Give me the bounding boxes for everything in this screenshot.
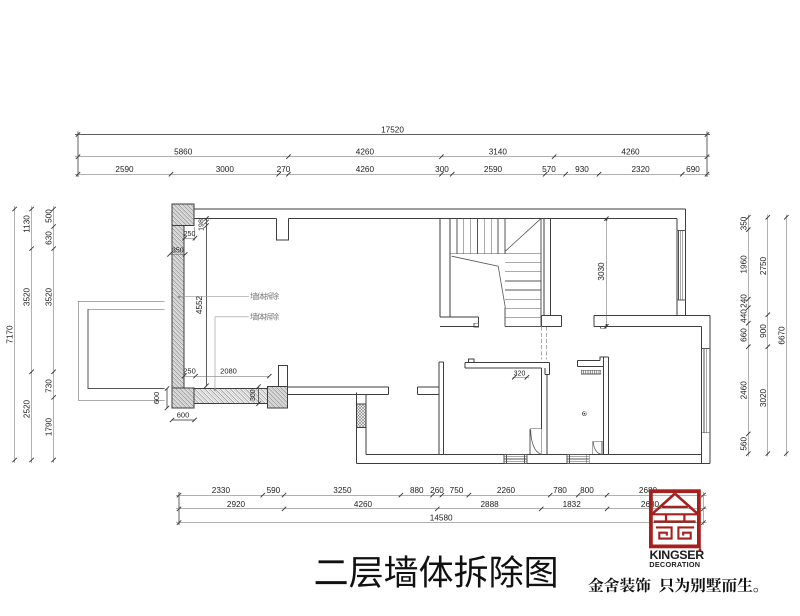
svg-text:250: 250 bbox=[184, 231, 196, 238]
svg-text:1130: 1130 bbox=[23, 215, 32, 233]
svg-text:660: 660 bbox=[739, 328, 748, 342]
svg-text:2750: 2750 bbox=[759, 256, 768, 275]
svg-text:4260: 4260 bbox=[356, 165, 375, 174]
svg-text:3030: 3030 bbox=[597, 262, 606, 281]
svg-text:350: 350 bbox=[172, 248, 184, 255]
svg-text:2260: 2260 bbox=[497, 486, 516, 495]
svg-text:3520: 3520 bbox=[23, 287, 32, 306]
svg-text:750: 750 bbox=[450, 486, 464, 495]
svg-text:350: 350 bbox=[739, 216, 748, 230]
svg-text:7170: 7170 bbox=[6, 325, 15, 344]
svg-text:690: 690 bbox=[686, 165, 700, 174]
svg-text:2590: 2590 bbox=[484, 165, 503, 174]
svg-text:2920: 2920 bbox=[227, 500, 246, 509]
svg-text:730: 730 bbox=[45, 379, 54, 393]
svg-text:DECORATION: DECORATION bbox=[649, 560, 700, 569]
svg-text:500: 500 bbox=[45, 209, 54, 223]
svg-text:240: 240 bbox=[739, 294, 748, 308]
svg-text:2520: 2520 bbox=[23, 399, 32, 418]
svg-text:3000: 3000 bbox=[216, 165, 235, 174]
svg-text:3250: 3250 bbox=[333, 486, 352, 495]
svg-text:3020: 3020 bbox=[759, 388, 768, 407]
svg-text:590: 590 bbox=[267, 486, 281, 495]
svg-text:3520: 3520 bbox=[45, 287, 54, 306]
svg-text:880: 880 bbox=[410, 486, 424, 495]
svg-text:5860: 5860 bbox=[174, 148, 193, 157]
svg-text:780: 780 bbox=[553, 486, 567, 495]
svg-text:2320: 2320 bbox=[631, 165, 650, 174]
svg-text:560: 560 bbox=[739, 437, 748, 451]
svg-text:2460: 2460 bbox=[739, 381, 748, 400]
svg-text:6670: 6670 bbox=[777, 326, 786, 345]
svg-text:570: 570 bbox=[542, 165, 556, 174]
svg-text:4552: 4552 bbox=[195, 295, 204, 314]
svg-text:250: 250 bbox=[183, 367, 196, 376]
svg-text:14580: 14580 bbox=[430, 514, 453, 523]
svg-text:4260: 4260 bbox=[621, 148, 640, 157]
svg-text:800: 800 bbox=[580, 486, 594, 495]
svg-text:300: 300 bbox=[435, 165, 449, 174]
svg-text:198: 198 bbox=[199, 219, 206, 231]
svg-text:3140: 3140 bbox=[489, 148, 508, 157]
svg-text:320: 320 bbox=[514, 371, 526, 378]
svg-text:4260: 4260 bbox=[356, 148, 375, 157]
svg-text:2590: 2590 bbox=[115, 165, 134, 174]
svg-text:1832: 1832 bbox=[563, 500, 582, 509]
svg-text:300: 300 bbox=[250, 389, 257, 401]
svg-text:4260: 4260 bbox=[354, 500, 373, 509]
svg-text:2330: 2330 bbox=[212, 486, 231, 495]
svg-text:1960: 1960 bbox=[739, 255, 748, 274]
svg-text:440: 440 bbox=[739, 309, 748, 323]
svg-text:630: 630 bbox=[45, 231, 54, 245]
svg-text:260: 260 bbox=[430, 486, 444, 495]
svg-text:600: 600 bbox=[177, 411, 190, 420]
svg-text:600: 600 bbox=[152, 392, 161, 405]
svg-text:270: 270 bbox=[277, 165, 291, 174]
svg-text:17520: 17520 bbox=[381, 126, 404, 135]
svg-text:1790: 1790 bbox=[45, 417, 54, 436]
svg-text:2888: 2888 bbox=[480, 500, 499, 509]
svg-text:930: 930 bbox=[575, 165, 589, 174]
svg-text:900: 900 bbox=[759, 324, 768, 338]
svg-text:2080: 2080 bbox=[220, 367, 237, 376]
